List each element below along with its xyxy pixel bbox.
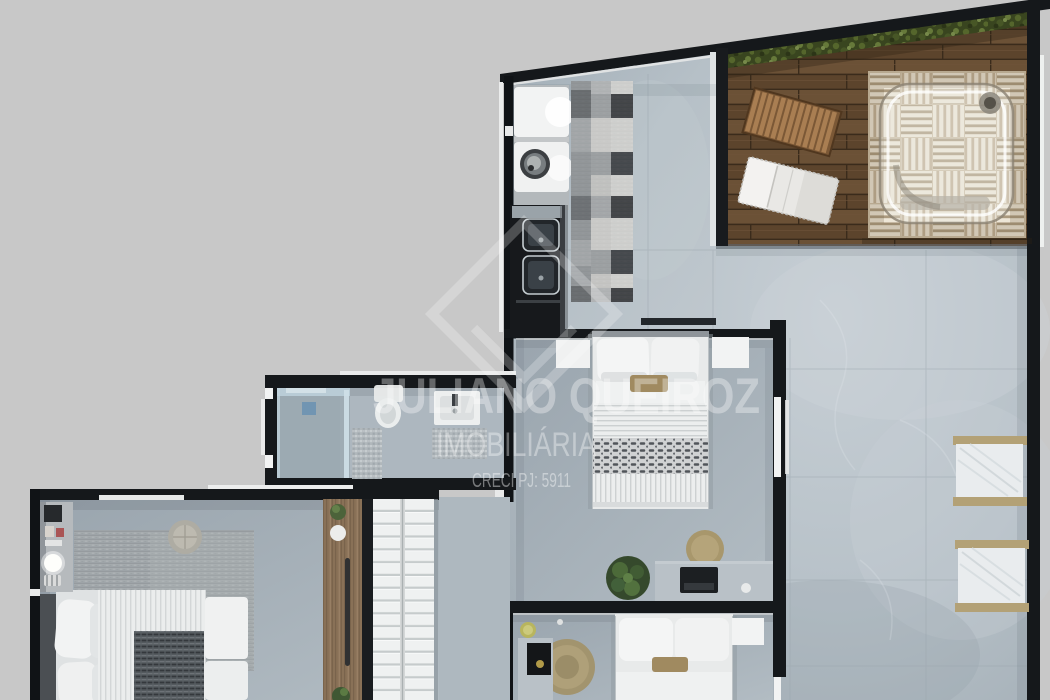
svg-text:IMOBILIÁRIA: IMOBILIÁRIA — [436, 426, 596, 464]
svg-text:JULIANO QUEIROZ: JULIANO QUEIROZ — [373, 368, 760, 424]
svg-text:CRECI PJ: 5911: CRECI PJ: 5911 — [472, 470, 571, 492]
